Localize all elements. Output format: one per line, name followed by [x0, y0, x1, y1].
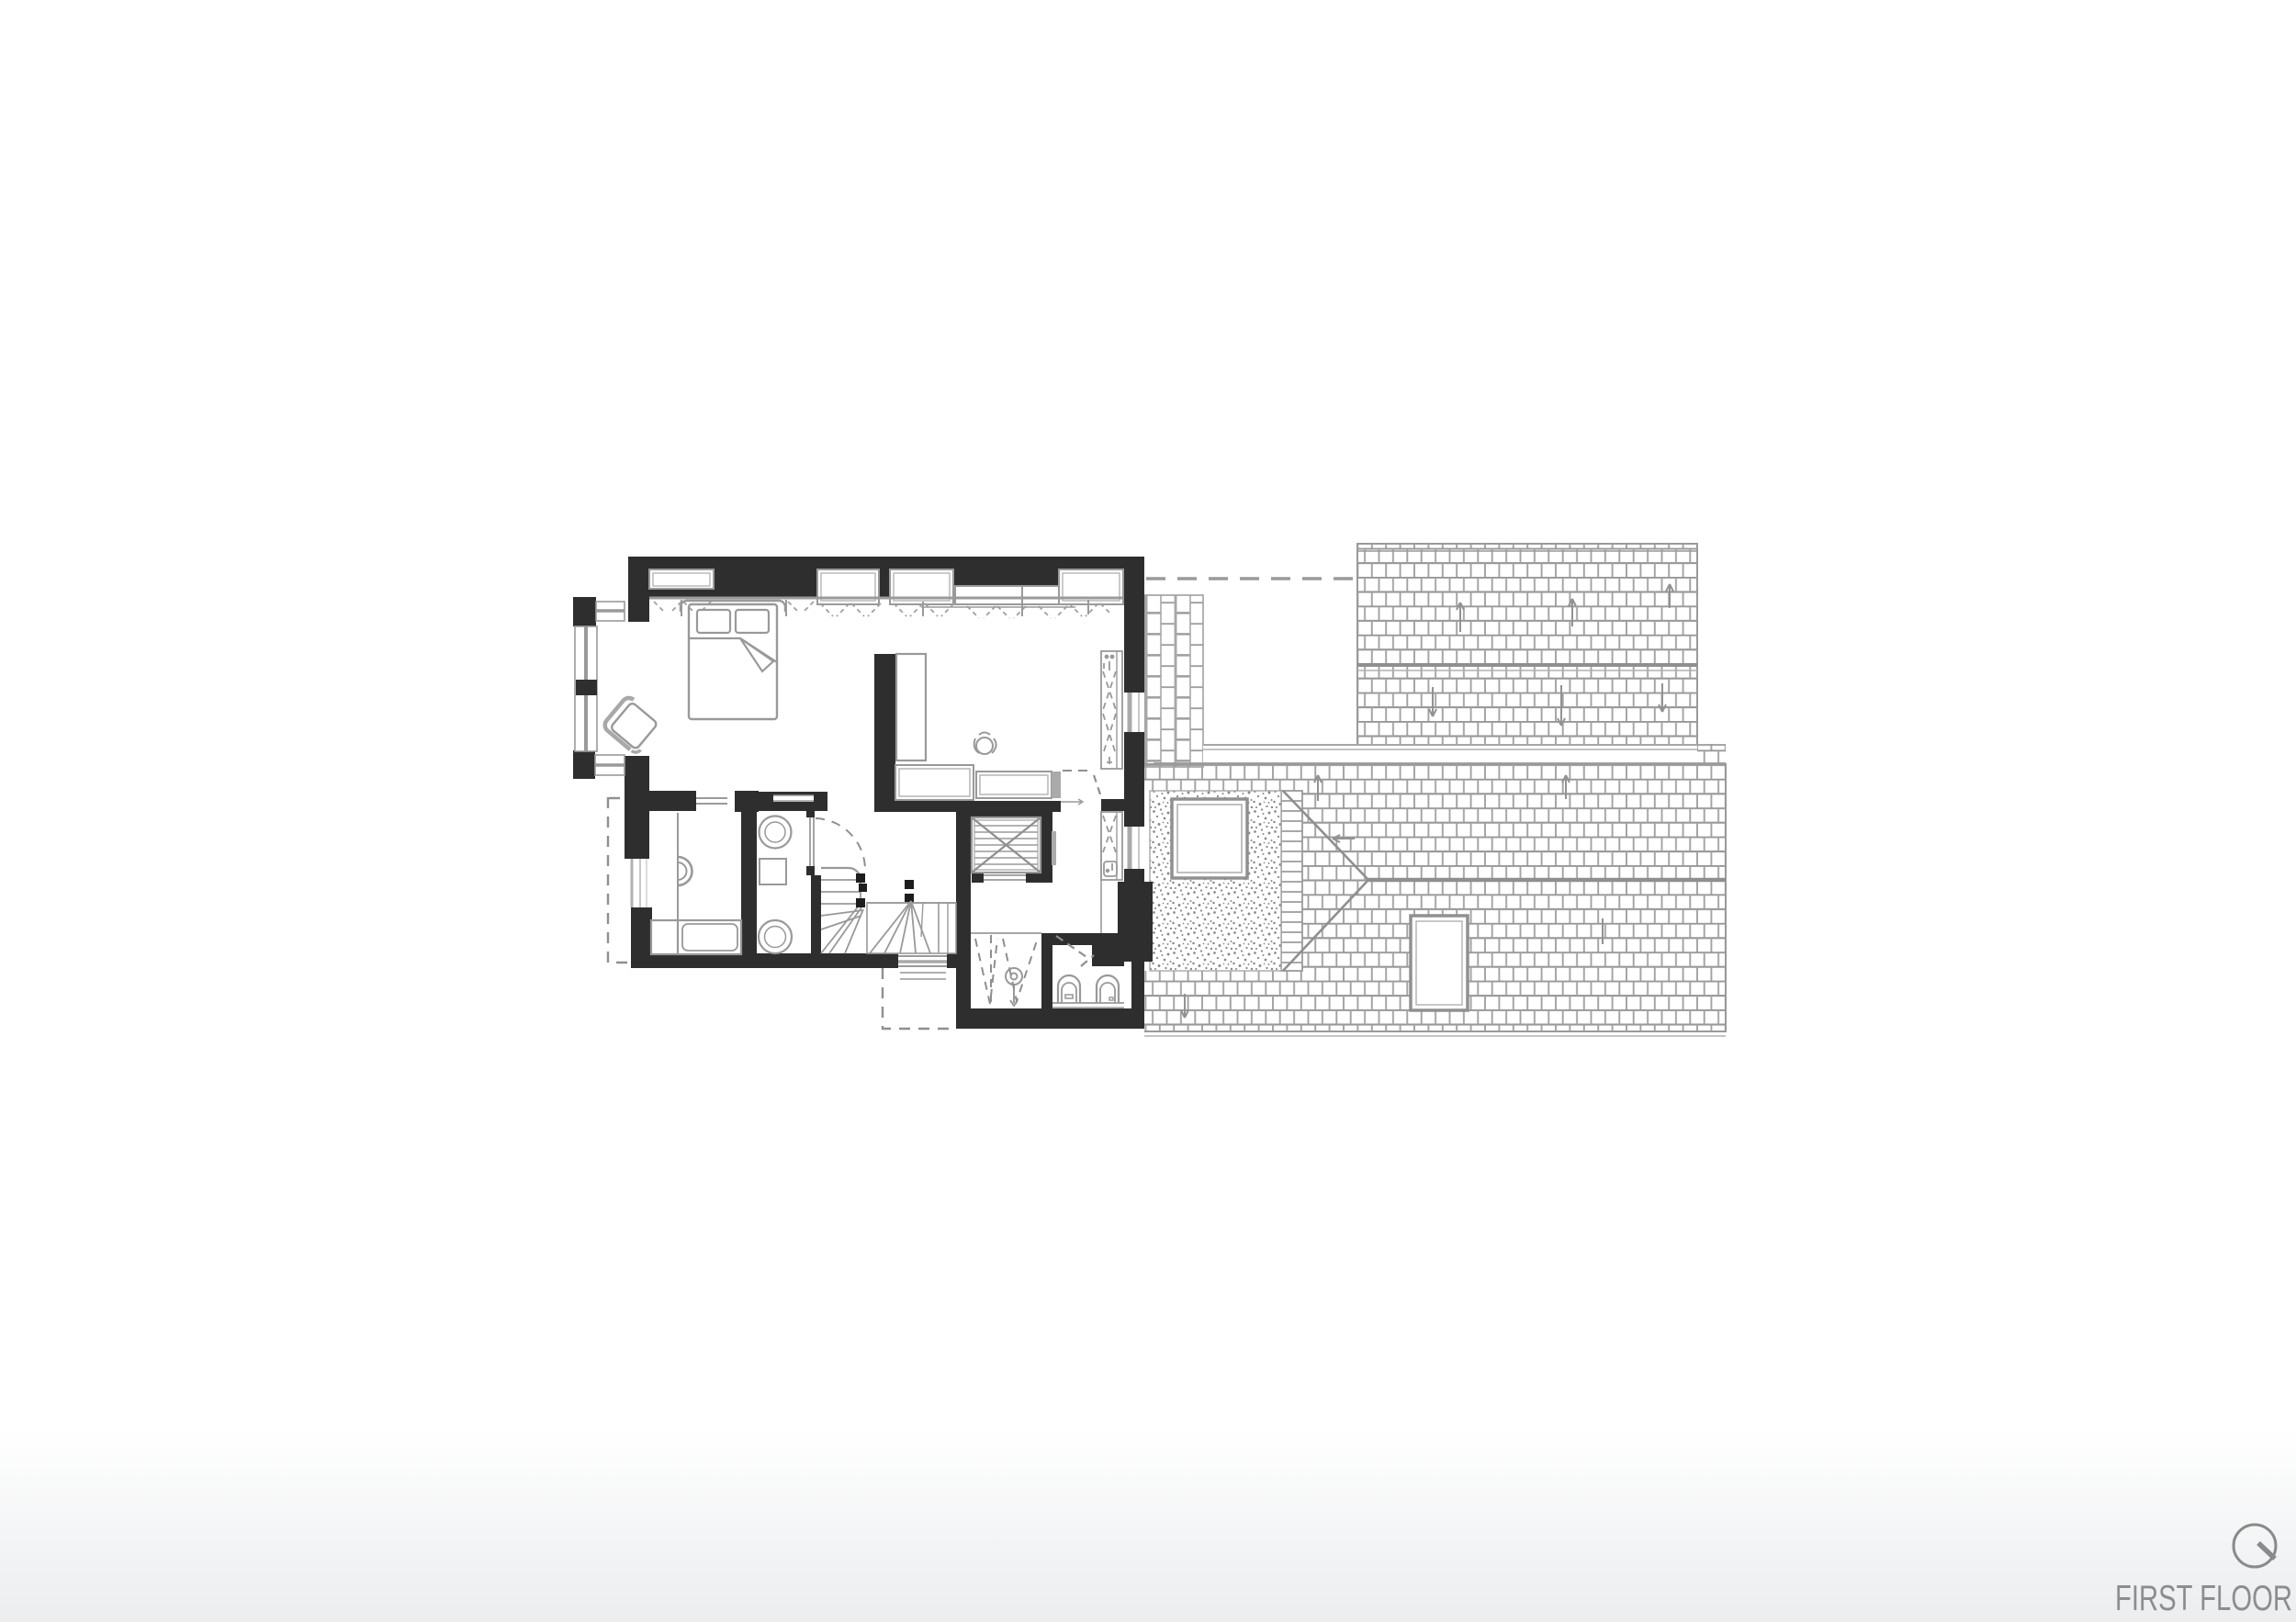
svg-text:FIRST FLOOR: FIRST FLOOR: [2115, 1579, 2292, 1618]
